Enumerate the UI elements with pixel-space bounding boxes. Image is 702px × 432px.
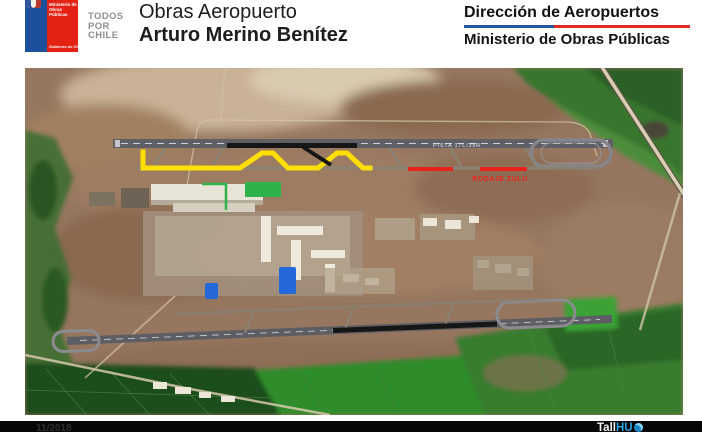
mop-government-logo: Ministerio de Obras Públicas Gobierno de… bbox=[25, 0, 78, 52]
title-line1: Obras Aeropuerto bbox=[139, 1, 348, 24]
brand-watermark: TallHU bbox=[597, 422, 643, 432]
chile-coat-of-arms-icon bbox=[26, 0, 41, 8]
logo-ministry-line2: Obras Públicas bbox=[49, 7, 78, 17]
department-line2: Ministerio de Obras Públicas bbox=[464, 31, 690, 49]
department-divider bbox=[464, 25, 690, 28]
department-line1: Dirección de Aeropuertos bbox=[464, 3, 690, 22]
divider-blue-segment bbox=[464, 25, 554, 28]
annotation-green-rect bbox=[245, 182, 281, 197]
logo-government-text: Gobierno de Chile bbox=[49, 44, 83, 49]
globe-icon bbox=[634, 423, 643, 432]
runway-north-label: PISTA 17L/35R bbox=[433, 143, 481, 149]
title-line2: Arturo Merino Benítez bbox=[139, 24, 348, 47]
slogan-line: CHILE bbox=[88, 31, 124, 41]
page-title: Obras Aeropuerto Arturo Merino Benítez bbox=[139, 1, 348, 47]
annotation-blue-rect-1 bbox=[205, 283, 218, 299]
page: Ministerio de Obras Públicas Gobierno de… bbox=[0, 0, 702, 432]
satellite-map: PISTA 17L/35R RODAJE ZULU bbox=[25, 68, 683, 415]
slogan-todos-por-chile: TODOS POR CHILE bbox=[88, 12, 124, 41]
department-header: Dirección de Aeropuertos Ministerio de O… bbox=[464, 3, 690, 49]
brand-text-blue: HU bbox=[616, 422, 633, 432]
satellite-scene: PISTA 17L/35R RODAJE ZULU bbox=[25, 68, 683, 415]
footer-bar: 11/2018 TallHU bbox=[0, 421, 702, 432]
footer-date: 11/2018 bbox=[36, 423, 72, 432]
divider-red-segment bbox=[554, 25, 690, 28]
annotation-blue-rect-2 bbox=[279, 267, 296, 294]
brand-text-white: Tall bbox=[597, 422, 616, 432]
rodaje-zulu-label: RODAJE ZULU bbox=[472, 176, 527, 183]
logo-ministry-text: Ministerio de Obras Públicas bbox=[49, 2, 78, 18]
